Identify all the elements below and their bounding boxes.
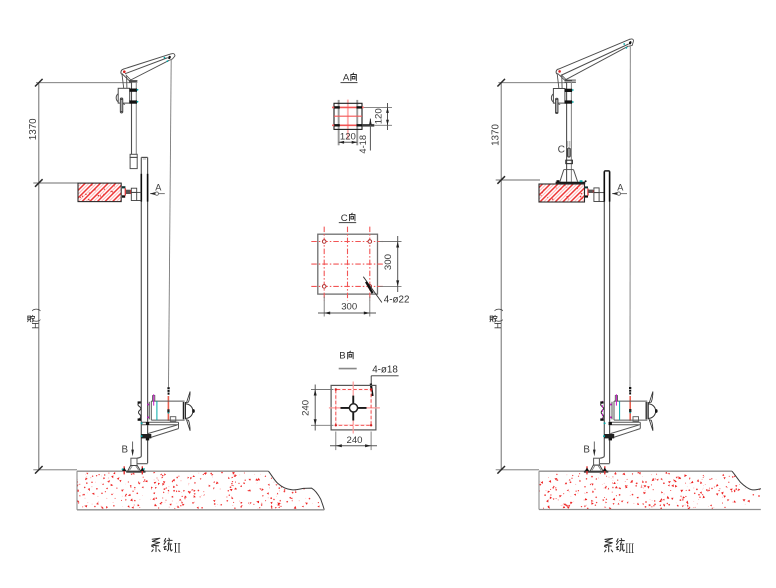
- svg-text:240: 240: [300, 400, 311, 416]
- svg-text:240: 240: [346, 435, 362, 446]
- svg-text:B: B: [122, 445, 129, 456]
- svg-text:B: B: [583, 445, 590, 456]
- svg-text:1370: 1370: [491, 124, 502, 146]
- svg-text:4-ø18: 4-ø18: [372, 364, 398, 375]
- svg-text:120: 120: [373, 108, 384, 124]
- svg-text:300: 300: [383, 254, 394, 270]
- svg-text:): ): [31, 308, 41, 311]
- svg-text:120: 120: [340, 132, 356, 143]
- svg-text:H(: H(: [493, 318, 503, 329]
- svg-text:A: A: [155, 182, 162, 192]
- svg-text:): ): [493, 308, 503, 311]
- svg-text:4-18: 4-18: [358, 135, 368, 154]
- svg-text:300: 300: [341, 301, 357, 312]
- svg-text:C: C: [558, 145, 565, 156]
- svg-text:4-ø22: 4-ø22: [384, 294, 410, 305]
- svg-text:III: III: [625, 541, 634, 557]
- svg-text:1370: 1370: [28, 118, 39, 140]
- svg-text:A: A: [343, 73, 350, 84]
- svg-text:A: A: [617, 182, 624, 192]
- svg-text:H(: H(: [31, 318, 41, 329]
- svg-text:B: B: [339, 350, 345, 361]
- svg-text:II: II: [174, 540, 181, 556]
